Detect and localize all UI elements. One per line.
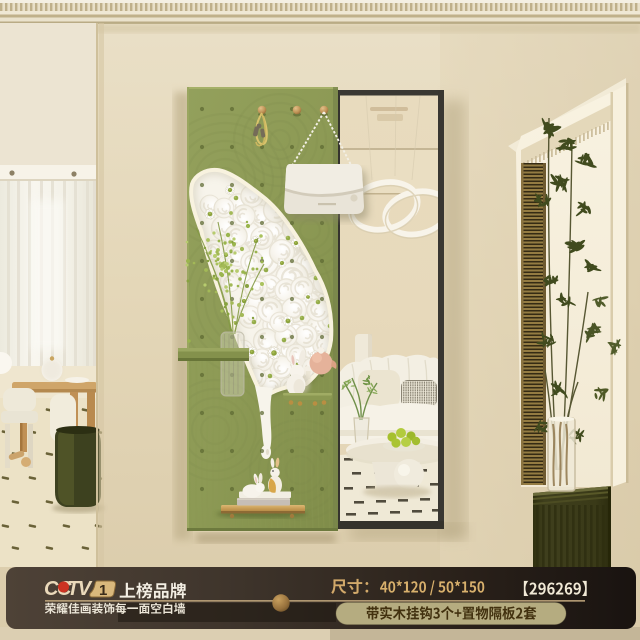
svg-text:TV: TV bbox=[67, 578, 93, 600]
svg-text:1: 1 bbox=[99, 582, 107, 599]
